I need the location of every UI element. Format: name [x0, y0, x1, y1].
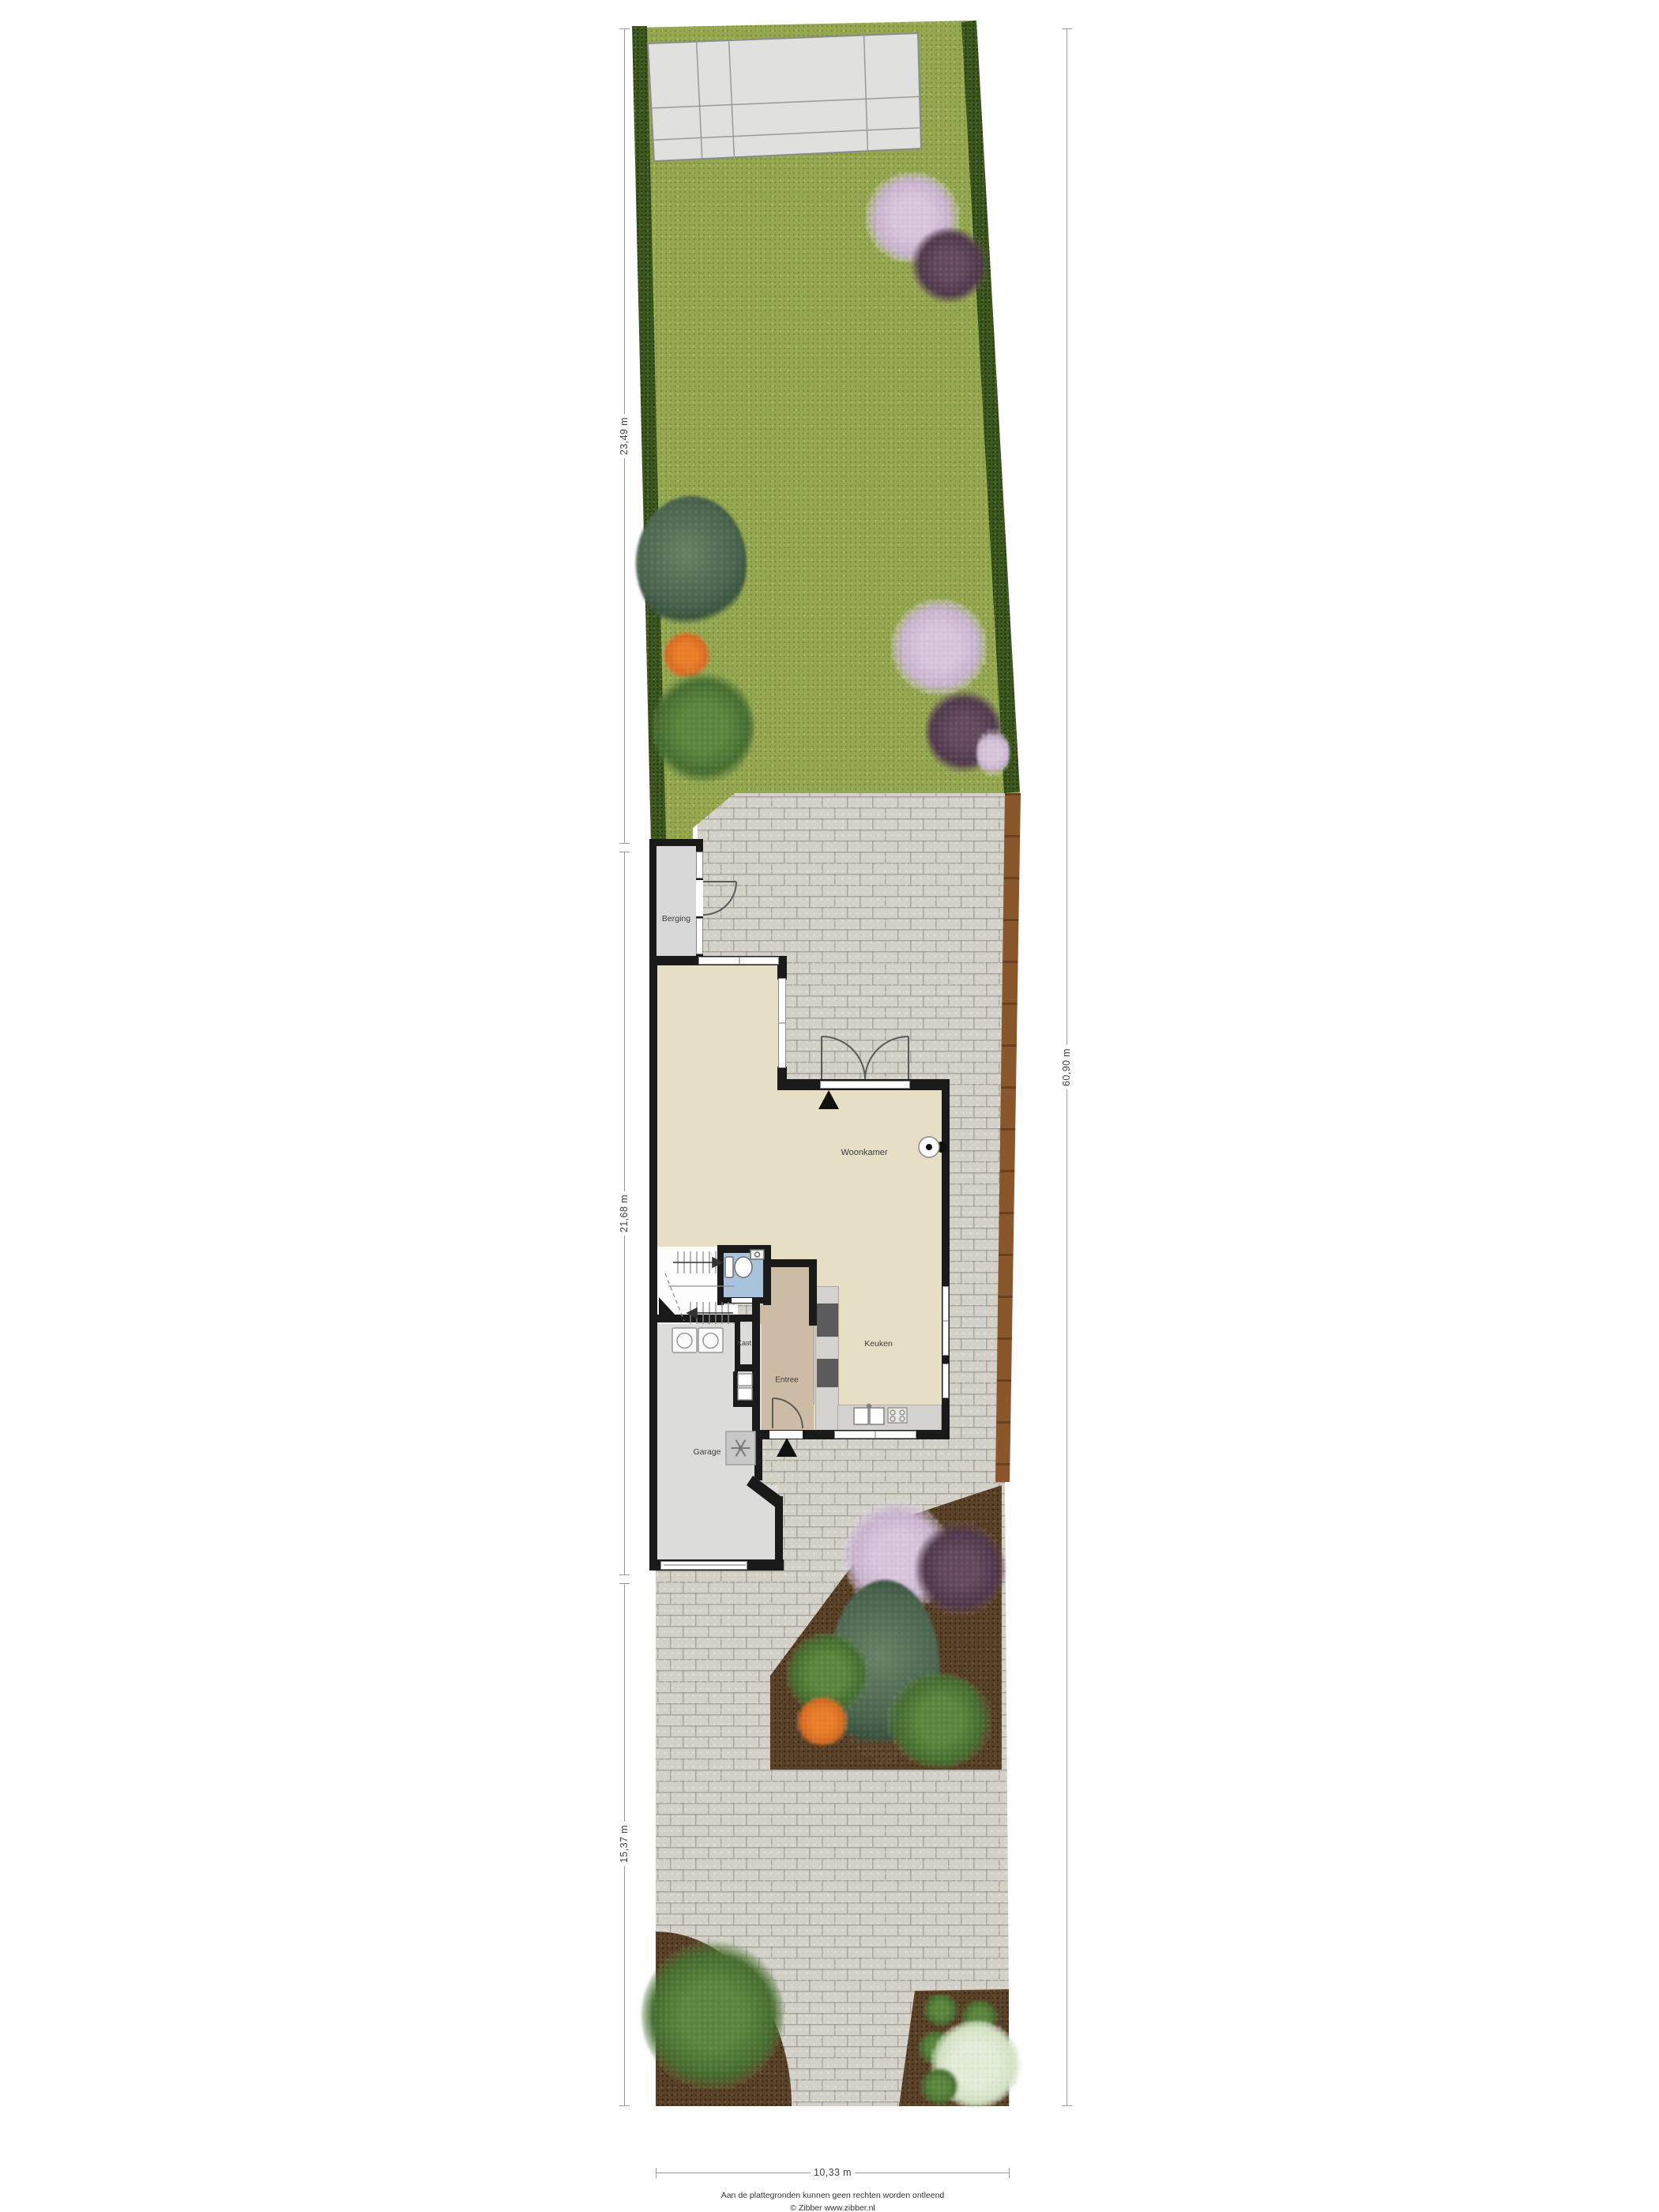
window: [942, 1364, 949, 1398]
door-opening: [820, 1081, 910, 1089]
blossom-tree: [891, 599, 987, 695]
shrub: [915, 1522, 1006, 1616]
window: [696, 918, 703, 954]
dimension-tick: [1009, 2168, 1010, 2178]
window: [942, 1286, 949, 1356]
flower-bush: [796, 1697, 848, 1746]
dimension-label-house: 21,68 m: [618, 1191, 630, 1236]
wall: [809, 1259, 817, 1326]
wall: [763, 1245, 771, 1305]
bush: [886, 1673, 993, 1768]
blossom-tree: [976, 728, 1010, 777]
room-label-garage: Garage: [693, 1447, 720, 1457]
room-garage-floor: [657, 1324, 762, 1561]
window: [834, 1431, 916, 1439]
shrub: [910, 228, 989, 303]
kitchen-appliance: [817, 1303, 838, 1337]
room-label-kast: Kast: [737, 1339, 751, 1347]
footer-credit: © Zibber www.zibber.nl: [790, 2203, 875, 2212]
dimension-label-total: 60,90 m: [1060, 1045, 1073, 1089]
floor-transition-line: [813, 1326, 814, 1405]
site-plan-canvas: Berging Woonkamer Keuken Kast Entree Gar…: [0, 0, 1659, 2212]
wall: [649, 956, 657, 1571]
dimension-tick: [619, 1574, 630, 1575]
window: [696, 852, 703, 878]
wall: [717, 1245, 724, 1305]
dimension-tick: [619, 843, 630, 844]
dimension-label-garden: 23,49 m: [618, 414, 630, 458]
bush: [923, 1994, 959, 2026]
kitchen-appliance: [817, 1359, 838, 1387]
room-label-keuken: Keuken: [864, 1339, 893, 1349]
footer-disclaimer: Aan de plattegronden kunnen geen rechten…: [721, 2191, 945, 2200]
window: [698, 957, 779, 965]
dimension-tick: [619, 28, 630, 29]
stairwell-floor: [657, 1247, 717, 1319]
room-label-entree: Entree: [775, 1376, 798, 1385]
room-berging-floor: [656, 846, 696, 961]
tree: [636, 496, 747, 630]
wall: [752, 1302, 760, 1433]
toilet-door: [732, 1298, 752, 1303]
window: [778, 978, 786, 1068]
wall: [649, 839, 656, 964]
front-door-opening: [769, 1431, 803, 1439]
dimension-tick: [619, 2105, 630, 2106]
bush: [920, 2068, 959, 2105]
wall: [649, 1315, 738, 1322]
bush: [641, 1940, 784, 2090]
room-label-berging: Berging: [662, 914, 690, 924]
bush: [653, 668, 754, 787]
wall: [765, 1259, 815, 1267]
room-label-woonkamer: Woonkamer: [841, 1148, 887, 1157]
garage-door: [660, 1561, 747, 1570]
wall: [775, 1496, 783, 1571]
kitchen-counter: [837, 1405, 942, 1433]
wall: [754, 1430, 762, 1480]
dimension-tick: [619, 1583, 630, 1584]
wall: [649, 839, 703, 846]
door-opening: [696, 880, 703, 916]
room-toilet-floor: [724, 1253, 765, 1299]
dimension-tick: [656, 2168, 656, 2178]
dimension-tick: [619, 852, 630, 852]
dimension-tick: [1062, 28, 1072, 29]
wall: [733, 1400, 754, 1407]
dimension-label-front: 15,37 m: [618, 1822, 630, 1866]
dimension-label-width: 10,33 m: [811, 2166, 855, 2179]
dimension-tick: [1062, 2105, 1072, 2106]
